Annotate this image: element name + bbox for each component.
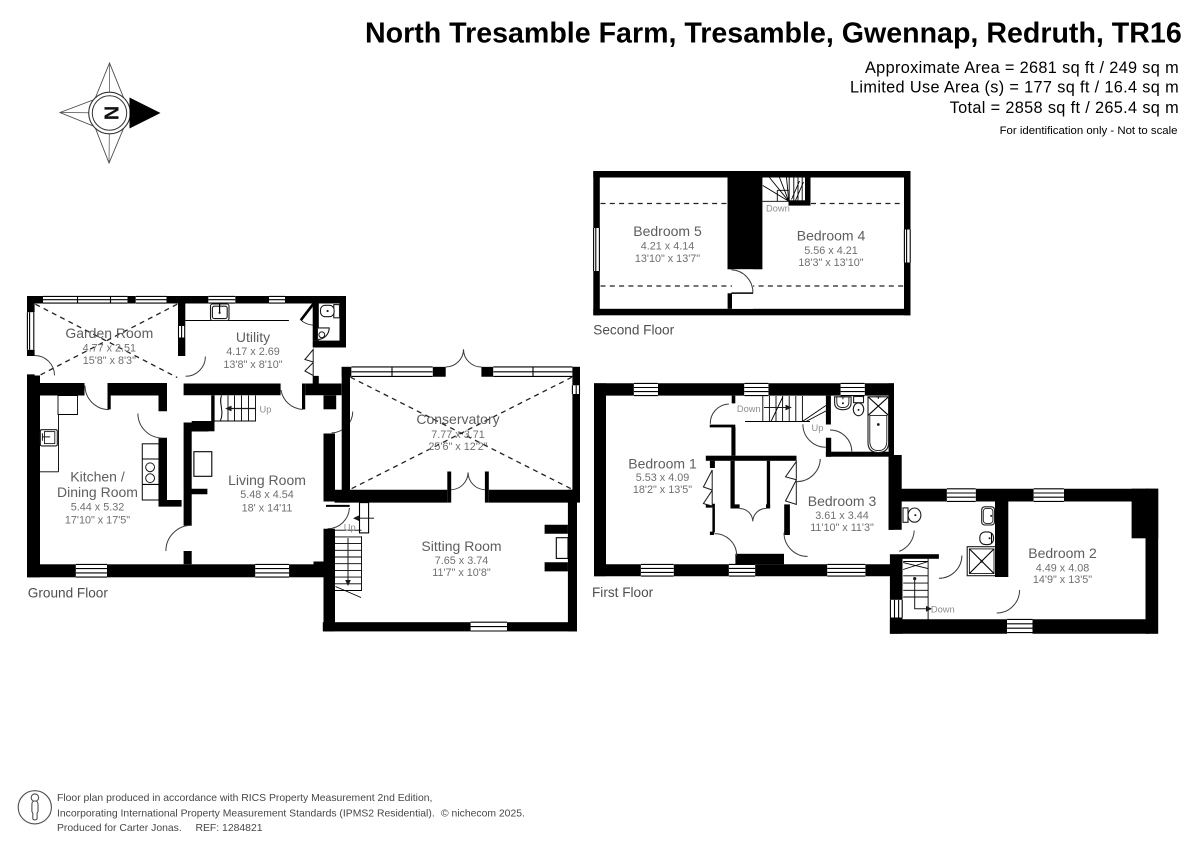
- svg-text:Bedroom 1: Bedroom 1: [628, 455, 697, 471]
- svg-text:4.49 x 4.08: 4.49 x 4.08: [1036, 563, 1089, 575]
- svg-text:5.56 x 4.21: 5.56 x 4.21: [804, 245, 857, 257]
- svg-text:Bedroom 5: Bedroom 5: [633, 223, 702, 239]
- svg-text:Utility: Utility: [236, 329, 270, 345]
- svg-text:Approximate Area = 2681 sq ft: Approximate Area = 2681 sq ft / 249 sq m: [865, 59, 1179, 77]
- svg-text:Incorporating International Pr: Incorporating International Property Mea…: [57, 809, 435, 820]
- svg-text:Up: Up: [812, 423, 824, 433]
- svg-text:Bedroom 2: Bedroom 2: [1028, 545, 1097, 561]
- svg-text:Bedroom 3: Bedroom 3: [808, 493, 877, 509]
- svg-text:7.65 x 3.74: 7.65 x 3.74: [435, 555, 488, 567]
- svg-text:7.77 x 3.71: 7.77 x 3.71: [431, 429, 484, 441]
- svg-text:14'9" x 13'5": 14'9" x 13'5": [1033, 574, 1092, 586]
- svg-text:5.48 x 4.54: 5.48 x 4.54: [240, 489, 293, 501]
- svg-text:First Floor: First Floor: [592, 585, 654, 600]
- svg-text:5.44 x 5.32: 5.44 x 5.32: [71, 502, 124, 514]
- svg-text:13'8" x 8'10": 13'8" x 8'10": [223, 359, 282, 371]
- svg-text:18'2" x 13'5": 18'2" x 13'5": [633, 484, 692, 496]
- svg-text:Living Room: Living Room: [228, 472, 306, 488]
- svg-text:Up: Up: [344, 523, 356, 533]
- svg-text:4.77 x 2.51: 4.77 x 2.51: [83, 343, 136, 355]
- svg-text:N: N: [100, 106, 122, 120]
- svg-text:Bedroom 4: Bedroom 4: [797, 228, 866, 244]
- svg-text:11'7" x 10'8": 11'7" x 10'8": [432, 567, 491, 579]
- svg-text:4.21 x 4.14: 4.21 x 4.14: [641, 241, 694, 253]
- svg-text:13'10" x 13'7": 13'10" x 13'7": [635, 253, 700, 265]
- svg-text:Total = 2858 sq ft / 265.4 sq: Total = 2858 sq ft / 265.4 sq m: [950, 99, 1179, 117]
- svg-text:15'8" x 8'3": 15'8" x 8'3": [83, 355, 136, 367]
- svg-text:Limited Use Area (s) = 177 sq: Limited Use Area (s) = 177 sq ft / 16.4 …: [850, 79, 1179, 97]
- svg-text:5.53 x 4.09: 5.53 x 4.09: [636, 472, 689, 484]
- svg-text:Dining Room: Dining Room: [57, 484, 138, 500]
- svg-text:18'3" x 13'10": 18'3" x 13'10": [798, 257, 863, 269]
- svg-text:11'10" x 11'3": 11'10" x 11'3": [810, 522, 874, 534]
- svg-text:17'10" x 17'5": 17'10" x 17'5": [65, 515, 130, 527]
- svg-text:© nichecom 2025.: © nichecom 2025.: [441, 809, 525, 820]
- svg-text:Floor plan produced in accorda: Floor plan produced in accordance with R…: [57, 793, 432, 804]
- svg-text:3.61 x 3.44: 3.61 x 3.44: [815, 510, 868, 522]
- svg-text:Kitchen /: Kitchen /: [70, 469, 125, 485]
- svg-text:For identification only - Not: For identification only - Not to scale: [1000, 125, 1178, 137]
- svg-text:Down: Down: [931, 604, 955, 614]
- svg-text:Up: Up: [260, 405, 272, 415]
- svg-text:Ground Floor: Ground Floor: [28, 585, 109, 600]
- svg-text:Produced for Carter Jonas.: Produced for Carter Jonas.: [57, 823, 182, 834]
- svg-text:Down: Down: [737, 404, 761, 414]
- svg-text:REF: 1284821: REF: 1284821: [196, 823, 263, 834]
- svg-text:Garden Room: Garden Room: [65, 325, 153, 341]
- svg-text:Down: Down: [766, 204, 790, 214]
- svg-text:Conservatory: Conservatory: [416, 411, 499, 427]
- svg-text:4.17 x 2.69: 4.17 x 2.69: [226, 346, 279, 358]
- svg-text:Second Floor: Second Floor: [593, 323, 674, 338]
- svg-text:18' x 14'11: 18' x 14'11: [242, 502, 293, 514]
- svg-text:25'6" x 12'2": 25'6" x 12'2": [428, 441, 487, 453]
- svg-text:North Tresamble Farm, Tresambl: North Tresamble Farm, Tresamble, Gwennap…: [365, 17, 1182, 49]
- svg-text:Sitting Room: Sitting Room: [421, 538, 501, 554]
